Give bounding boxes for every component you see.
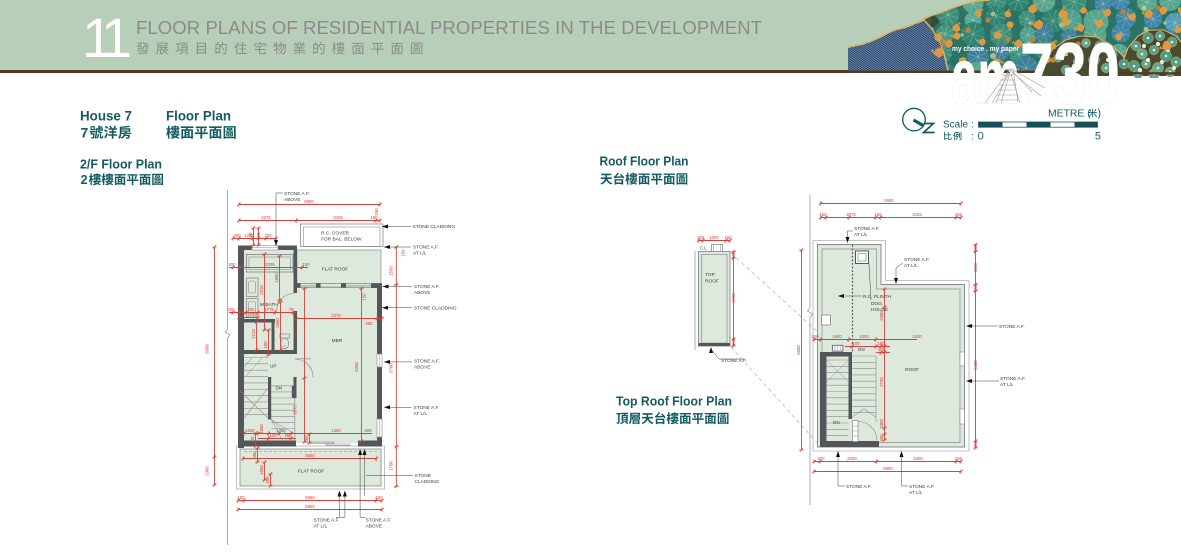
- svg-text:150: 150: [375, 495, 383, 500]
- svg-text:150: 150: [248, 232, 253, 240]
- svg-text:3425: 3425: [333, 215, 343, 220]
- svg-text:ABOVE: ABOVE: [366, 524, 383, 530]
- svg-text:150: 150: [724, 235, 732, 240]
- svg-text:150: 150: [731, 251, 736, 259]
- svg-text:DN: DN: [858, 347, 865, 352]
- svg-text:5950: 5950: [884, 198, 894, 203]
- svg-text:200: 200: [228, 262, 236, 267]
- svg-text:AT L/L: AT L/L: [414, 411, 428, 417]
- svg-text:AT L/L: AT L/L: [1000, 382, 1014, 388]
- svg-text:3725: 3725: [292, 328, 297, 338]
- svg-text:2500: 2500: [275, 318, 280, 328]
- svg-text:1215: 1215: [251, 329, 256, 339]
- svg-text:STONE A.F.: STONE A.F.: [909, 484, 935, 490]
- svg-text:STONE A.F.: STONE A.F.: [846, 484, 872, 490]
- svg-text:6700: 6700: [389, 363, 394, 373]
- svg-text:STONE CLADDING: STONE CLADDING: [414, 306, 457, 312]
- svg-text:STONE A.F.: STONE A.F.: [414, 284, 440, 290]
- svg-text:UP: UP: [270, 364, 276, 369]
- svg-text:AT L/L: AT L/L: [904, 263, 918, 269]
- svg-text:2675: 2675: [292, 405, 297, 415]
- svg-text:150: 150: [304, 435, 309, 443]
- svg-text:150: 150: [401, 249, 406, 257]
- svg-text:ABOVE: ABOVE: [414, 365, 431, 371]
- svg-text:100: 100: [852, 341, 860, 346]
- svg-text:1300: 1300: [205, 466, 210, 476]
- svg-text:1045: 1045: [247, 312, 257, 317]
- svg-text:AT L/L: AT L/L: [909, 490, 923, 496]
- svg-text:STONE: STONE: [415, 473, 431, 479]
- svg-text:150: 150: [265, 476, 270, 484]
- svg-text:3750: 3750: [731, 293, 736, 303]
- svg-text:200: 200: [250, 436, 255, 444]
- svg-text:1600: 1600: [832, 334, 842, 339]
- svg-text:STONE A.F.: STONE A.F.: [414, 359, 440, 365]
- svg-text:500: 500: [252, 451, 257, 459]
- svg-text:1775: 1775: [264, 307, 274, 312]
- svg-text:R.C. COVER: R.C. COVER: [321, 231, 350, 237]
- svg-text:ROOF: ROOF: [705, 279, 719, 285]
- svg-text:1600: 1600: [259, 424, 264, 434]
- svg-text:1000: 1000: [879, 419, 884, 429]
- svg-text:8600: 8600: [796, 345, 801, 355]
- svg-text:200: 200: [364, 428, 372, 433]
- svg-text:STONE A.F.: STONE A.F.: [854, 226, 880, 232]
- svg-text:1700: 1700: [389, 461, 394, 471]
- svg-text:C.L.: C.L.: [700, 246, 708, 251]
- svg-text:STONE A.F.: STONE A.F.: [284, 191, 310, 197]
- svg-text:150: 150: [256, 232, 261, 240]
- svg-text:3375: 3375: [331, 313, 341, 318]
- svg-text:5550: 5550: [305, 453, 315, 458]
- svg-text:AT L/L: AT L/L: [854, 232, 868, 238]
- svg-text:5950: 5950: [883, 466, 893, 471]
- svg-text:100: 100: [269, 433, 277, 438]
- svg-text:200: 200: [817, 456, 825, 461]
- svg-text:STONE A.F.: STONE A.F.: [999, 324, 1025, 330]
- svg-text:6900: 6900: [205, 344, 210, 354]
- svg-text:750: 750: [264, 233, 272, 238]
- svg-text:6400: 6400: [973, 360, 978, 370]
- svg-text:1000: 1000: [245, 428, 255, 433]
- svg-text:150: 150: [302, 262, 310, 267]
- svg-text:2025: 2025: [265, 262, 275, 267]
- svg-text:1350: 1350: [331, 428, 341, 433]
- svg-text:2750: 2750: [879, 377, 884, 387]
- svg-text:2910: 2910: [259, 285, 264, 295]
- svg-text:3425: 3425: [912, 212, 922, 217]
- svg-text:CLADDING: CLADDING: [415, 479, 440, 485]
- svg-text:200: 200: [227, 307, 235, 312]
- svg-text:200: 200: [365, 321, 373, 326]
- svg-text:450: 450: [233, 233, 241, 238]
- svg-text:150: 150: [697, 235, 705, 240]
- svg-text:150: 150: [874, 212, 882, 217]
- svg-text:150: 150: [731, 338, 736, 346]
- svg-text:1600: 1600: [274, 273, 279, 283]
- svg-text:FOR BAL. BELOW: FOR BAL. BELOW: [321, 237, 362, 243]
- svg-text:2200: 2200: [847, 456, 857, 461]
- svg-text:STONE A.F.: STONE A.F.: [414, 405, 440, 411]
- svg-text:150: 150: [955, 212, 963, 217]
- svg-text:100: 100: [284, 433, 292, 438]
- svg-text:200: 200: [811, 334, 819, 339]
- svg-text:75: 75: [289, 307, 294, 312]
- svg-text:DN: DN: [833, 420, 840, 425]
- svg-text:1000: 1000: [709, 235, 719, 240]
- svg-text:5650: 5650: [305, 495, 315, 500]
- svg-text:HOUSE: HOUSE: [871, 307, 888, 313]
- svg-text:3400: 3400: [913, 456, 923, 461]
- svg-text:STONE A.F.: STONE A.F.: [413, 245, 439, 251]
- svg-text:STONE A.F.: STONE A.F.: [904, 257, 930, 263]
- svg-text:3400: 3400: [912, 334, 922, 339]
- svg-text:R.C. PLINTH: R.C. PLINTH: [863, 294, 892, 300]
- svg-text:DOG: DOG: [871, 301, 882, 307]
- svg-text:MBR: MBR: [332, 338, 343, 344]
- svg-text:FLAT ROOF: FLAT ROOF: [298, 469, 325, 475]
- svg-text:AT L/L: AT L/L: [413, 251, 427, 257]
- svg-text:ABOVE: ABOVE: [414, 290, 431, 296]
- svg-text:1050: 1050: [259, 465, 264, 475]
- svg-text:150: 150: [955, 456, 963, 461]
- svg-text:150: 150: [237, 495, 245, 500]
- svg-text:STONE A.F.: STONE A.F.: [366, 518, 392, 524]
- svg-text:2075: 2075: [846, 212, 856, 217]
- svg-text:150: 150: [973, 244, 978, 252]
- svg-text:FLAT ROOF: FLAT ROOF: [322, 267, 349, 273]
- svg-text:150: 150: [374, 208, 379, 216]
- svg-text:STONE CLADDING: STONE CLADDING: [413, 224, 456, 230]
- svg-text:STONE A.F.: STONE A.F.: [314, 518, 340, 524]
- svg-text:150: 150: [973, 284, 978, 292]
- svg-text:5950: 5950: [304, 199, 314, 204]
- svg-text:ABOVE: ABOVE: [284, 197, 301, 203]
- svg-text:ROOF: ROOF: [905, 367, 919, 373]
- svg-text:1550: 1550: [973, 263, 978, 273]
- svg-text:5950: 5950: [305, 504, 315, 509]
- svg-text:1000: 1000: [859, 334, 869, 339]
- svg-text:DN: DN: [276, 386, 283, 391]
- svg-text:2375: 2375: [261, 215, 271, 220]
- svg-text:6350: 6350: [354, 362, 359, 372]
- svg-text:100: 100: [263, 341, 268, 349]
- svg-text:150: 150: [819, 212, 827, 217]
- svg-text:STONE A.F.: STONE A.F.: [1000, 376, 1026, 382]
- svg-text:STONE A.F.: STONE A.F.: [721, 358, 747, 364]
- svg-text:150: 150: [362, 293, 367, 301]
- svg-text:TOP: TOP: [705, 272, 715, 278]
- svg-text:200: 200: [879, 434, 884, 442]
- svg-text:1550: 1550: [389, 266, 394, 276]
- svg-text:AT L/L: AT L/L: [314, 524, 328, 530]
- svg-text:150: 150: [973, 440, 978, 448]
- svg-text:150: 150: [877, 341, 885, 346]
